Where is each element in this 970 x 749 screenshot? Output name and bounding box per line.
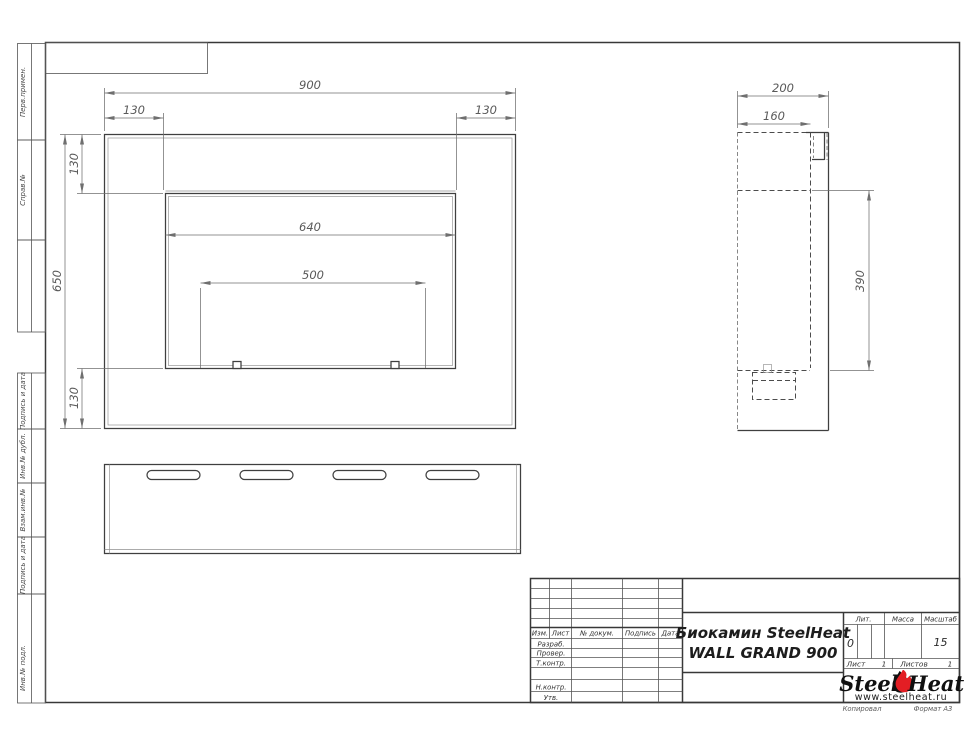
vent-slot <box>240 471 293 480</box>
dimension-label-640: 640 <box>299 220 321 234</box>
tb-lit-value: 0 <box>847 637 854 650</box>
sheet-frame <box>46 43 960 703</box>
dimension-label-500: 500 <box>302 268 324 282</box>
logo-url: www.steelheat.ru <box>855 692 947 703</box>
document-title-line2: WALL GRAND 900 <box>689 644 838 662</box>
dim-opening-width: 640 <box>166 220 456 235</box>
dim-side-opening-height: 390 <box>812 191 874 371</box>
tb-listov-value: 1 <box>948 660 953 669</box>
burner-clip-right <box>391 362 399 369</box>
top-left-stamp-box <box>46 43 208 74</box>
dimension-label-900: 900 <box>299 78 321 92</box>
tb-col-izm: Изм. <box>532 630 548 638</box>
burner-clip-left <box>233 362 241 369</box>
side-view <box>738 133 829 431</box>
dim-top-margin-right: 130 <box>457 103 516 190</box>
cad-canvas: Перв.примен. Справ.№ Подпись и дата Инв.… <box>0 0 970 749</box>
bottom-view <box>105 465 521 554</box>
dimension-label-200: 200 <box>772 81 794 95</box>
tb-row-razrab: Разраб. <box>537 641 564 649</box>
title-block: Изм. Лист № докум. Подпись Дата Разраб. … <box>531 579 965 704</box>
tb-row-tkontr: Т.контр. <box>536 660 566 668</box>
left-label-strip: Перв.примен. Справ.№ Подпись и дата Инв.… <box>18 44 46 704</box>
vent-slot <box>147 471 200 480</box>
dimension-label-130-left-bottom: 130 <box>67 387 81 409</box>
format-caption: Формат А3 <box>914 705 953 713</box>
tb-col-list: Лист <box>551 630 570 638</box>
tb-masshtab-value: 15 <box>934 636 948 649</box>
strip-label-vzam-inv: Взам.инв.№ <box>19 488 27 531</box>
burner-box-hidden <box>738 365 811 400</box>
dim-front-width: 900 <box>105 78 516 131</box>
tb-masshtab-label: Масштаб <box>924 616 957 624</box>
dim-side-inner-depth: 160 <box>738 109 811 124</box>
strip-label-sprav: Справ.№ <box>19 174 27 206</box>
strip-label-perv-primen: Перв.примен. <box>19 67 27 117</box>
dimension-label-650: 650 <box>50 270 64 292</box>
tb-row-prover: Провер. <box>537 650 566 658</box>
tb-col-doc: № докум. <box>579 630 614 638</box>
tb-massa-label: Масса <box>892 616 914 624</box>
dimension-label-390: 390 <box>853 270 867 292</box>
dimension-label-130-top-left: 130 <box>123 103 145 117</box>
tb-row-utv: Утв. <box>544 694 558 702</box>
dim-left-margin-bottom: 130 <box>67 369 163 429</box>
steelheat-logo: Steel Heat www.steelheat.ru <box>839 670 964 704</box>
tb-list-value: 1 <box>882 660 887 669</box>
dimension-label-130-top-right: 130 <box>475 103 497 117</box>
vent-slot <box>426 471 479 480</box>
dim-burner-width: 500 <box>201 268 426 368</box>
kopiroval-caption: Копировал <box>843 705 882 713</box>
strip-label-podpis-data-2: Подпись и дата <box>19 536 27 594</box>
strip-label-inv-podl: Инв.№ подл. <box>19 645 27 691</box>
tb-list-label: Лист <box>846 660 866 669</box>
strip-label-podpis-data-1: Подпись и дата <box>19 372 27 430</box>
tb-lit-label: Лит. <box>855 616 872 624</box>
tb-col-sign: Подпись <box>625 630 656 638</box>
strip-label-inv-dubl: Инв.№ дубл. <box>19 433 27 479</box>
tb-row-nkontr: Н.контр. <box>536 684 567 692</box>
document-title-line1: Биокамин SteelHeat <box>676 624 851 642</box>
dim-left-margin-top: 130 <box>67 135 163 194</box>
dim-front-height: 650 <box>50 135 101 429</box>
vent-slot <box>333 471 386 480</box>
dimension-label-160: 160 <box>763 109 785 123</box>
drawing-sheet: Перв.примен. Справ.№ Подпись и дата Инв.… <box>0 0 970 749</box>
tb-listov-label: Листов <box>899 660 928 669</box>
mount-bracket <box>812 133 827 160</box>
dimension-label-130-left-top: 130 <box>67 153 81 175</box>
dim-top-margin-left: 130 <box>105 103 164 190</box>
